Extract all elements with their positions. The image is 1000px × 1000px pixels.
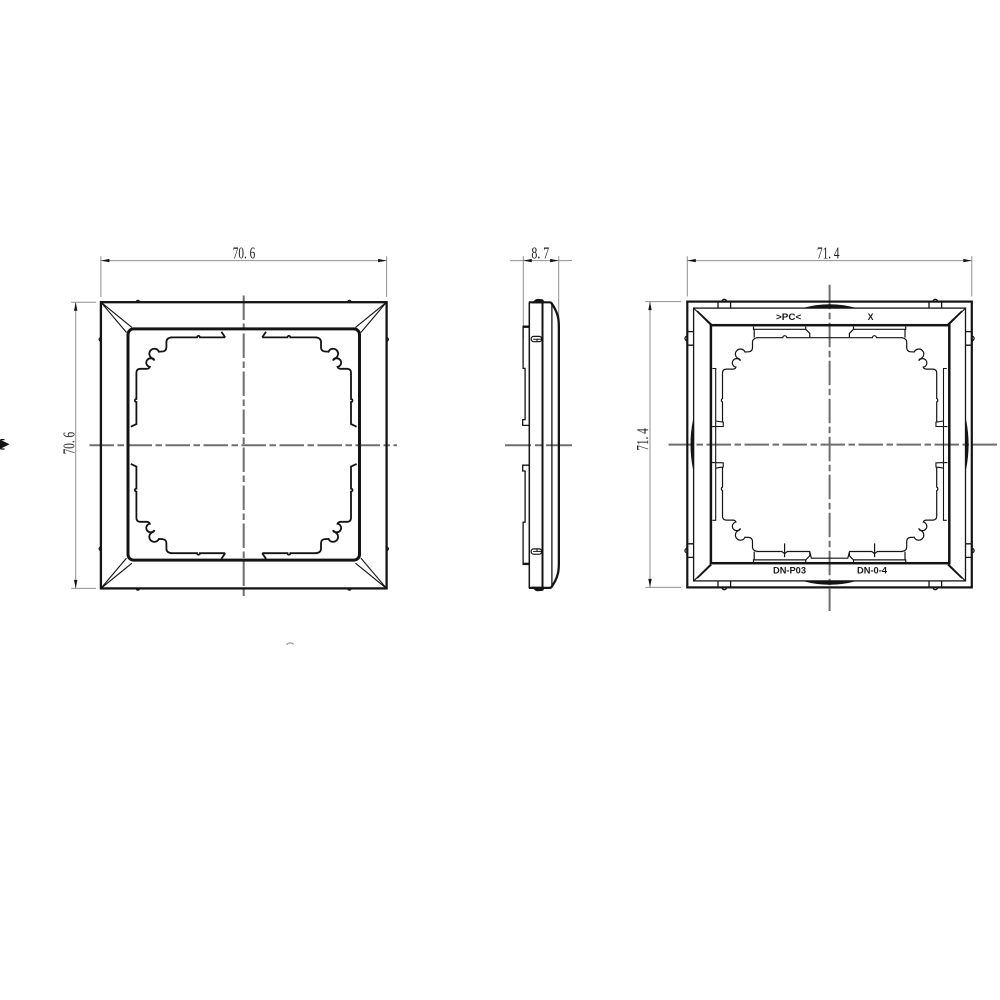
svg-text:DN-P03: DN-P03	[773, 566, 806, 576]
svg-text:DN-0-4: DN-0-4	[857, 566, 887, 576]
svg-text:8. 7: 8. 7	[531, 244, 549, 263]
svg-text:>PC<: >PC<	[776, 312, 801, 322]
svg-text:70. 6: 70. 6	[233, 244, 256, 263]
svg-text:71. 4: 71. 4	[633, 428, 652, 451]
svg-text:X: X	[868, 312, 874, 322]
svg-text:71. 4: 71. 4	[817, 244, 840, 263]
svg-text:70. 6: 70. 6	[60, 432, 79, 455]
